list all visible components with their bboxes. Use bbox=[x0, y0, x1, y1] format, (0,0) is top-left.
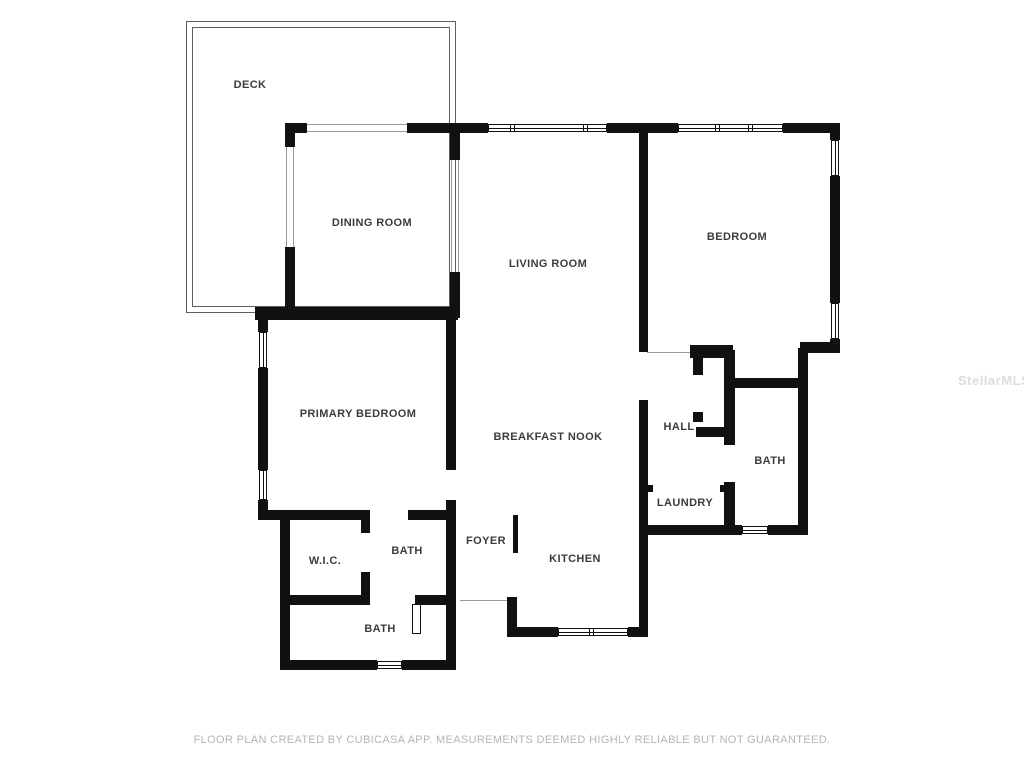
window-mullion bbox=[583, 124, 584, 132]
window-mullion bbox=[514, 124, 515, 132]
wall-segment bbox=[693, 350, 703, 375]
window-center-line bbox=[678, 128, 783, 129]
room-label-primary-bedroom: PRIMARY BEDROOM bbox=[300, 408, 417, 420]
room-label-deck: DECK bbox=[234, 79, 267, 91]
wall-segment bbox=[446, 500, 456, 670]
wall-segment bbox=[408, 510, 456, 520]
room-label-hall: HALL bbox=[664, 421, 695, 433]
room-label-bath-bottom: BATH bbox=[364, 623, 395, 635]
opening-line bbox=[307, 131, 407, 132]
window-mullion bbox=[589, 628, 590, 636]
wall-segment bbox=[513, 515, 518, 553]
room-label-dining-room: DINING ROOM bbox=[332, 217, 412, 229]
opening-line bbox=[460, 600, 507, 601]
wall-segment bbox=[407, 123, 488, 133]
wall-segment bbox=[830, 123, 840, 140]
deck-outline-inner bbox=[192, 27, 450, 307]
wall-segment bbox=[450, 272, 460, 318]
window-center-line bbox=[835, 140, 836, 176]
wall-segment bbox=[285, 247, 295, 318]
window-mullion bbox=[510, 124, 511, 132]
wall-segment bbox=[724, 482, 735, 527]
wall-segment bbox=[258, 368, 268, 470]
window-mullion bbox=[593, 628, 594, 636]
room-label-kitchen: KITCHEN bbox=[549, 553, 601, 565]
wall-segment bbox=[733, 378, 808, 388]
wall-segment bbox=[415, 595, 456, 605]
floorplan-page: { "title": "Floor plan", "colors": { "ba… bbox=[0, 0, 1024, 768]
window-mullion bbox=[752, 124, 753, 132]
opening-line bbox=[451, 160, 452, 272]
opening-line bbox=[293, 147, 294, 247]
room-label-bath-right: BATH bbox=[754, 455, 785, 467]
window-center-line bbox=[263, 470, 264, 500]
wall-segment bbox=[830, 176, 840, 303]
disclaimer-text: FLOOR PLAN CREATED BY CUBICASA APP. MEAS… bbox=[0, 734, 1024, 746]
wall-segment bbox=[768, 525, 808, 535]
window-mullion bbox=[719, 124, 720, 132]
room-label-bedroom: BEDROOM bbox=[707, 231, 767, 243]
wall-segment bbox=[696, 427, 730, 437]
wall-segment bbox=[280, 510, 290, 670]
wall-segment bbox=[402, 660, 456, 670]
wall-segment bbox=[280, 595, 370, 605]
wall-segment bbox=[446, 310, 456, 470]
opening-line bbox=[458, 160, 459, 272]
wall-segment bbox=[693, 412, 703, 422]
window-center-line bbox=[742, 530, 768, 531]
wall-segment bbox=[280, 660, 377, 670]
window-center-line bbox=[835, 303, 836, 339]
wall-segment bbox=[639, 400, 648, 637]
room-label-breakfast-nook: BREAKFAST NOOK bbox=[494, 431, 603, 443]
wall-segment bbox=[361, 510, 370, 533]
wall-segment bbox=[639, 123, 648, 352]
opening-line bbox=[307, 124, 407, 125]
wall-segment bbox=[258, 510, 368, 520]
wall-segment bbox=[258, 500, 268, 520]
wall-segment bbox=[450, 123, 460, 160]
room-label-living-room: LIVING ROOM bbox=[509, 258, 587, 270]
window-mullion bbox=[587, 124, 588, 132]
window-mullion bbox=[748, 124, 749, 132]
room-label-laundry: LAUNDRY bbox=[657, 497, 713, 509]
door-leaf bbox=[412, 604, 421, 634]
opening-line bbox=[647, 352, 690, 353]
wall-segment bbox=[361, 572, 370, 605]
window-center-line bbox=[488, 128, 607, 129]
room-label-wic: W.I.C. bbox=[309, 555, 341, 567]
watermark: StellarMLS bbox=[958, 373, 1024, 388]
wall-segment bbox=[798, 388, 808, 535]
wall-segment bbox=[285, 123, 295, 147]
opening-line bbox=[286, 147, 287, 247]
floorplan-canvas: DECKDINING ROOMLIVING ROOMBEDROOMPRIMARY… bbox=[0, 0, 1024, 768]
room-label-bath-middle: BATH bbox=[391, 545, 422, 557]
window-mullion bbox=[715, 124, 716, 132]
window-center-line bbox=[263, 332, 264, 368]
wall-segment bbox=[507, 597, 517, 637]
room-label-foyer: FOYER bbox=[466, 535, 506, 547]
window-center-line bbox=[377, 665, 402, 666]
wall-segment bbox=[639, 485, 653, 492]
